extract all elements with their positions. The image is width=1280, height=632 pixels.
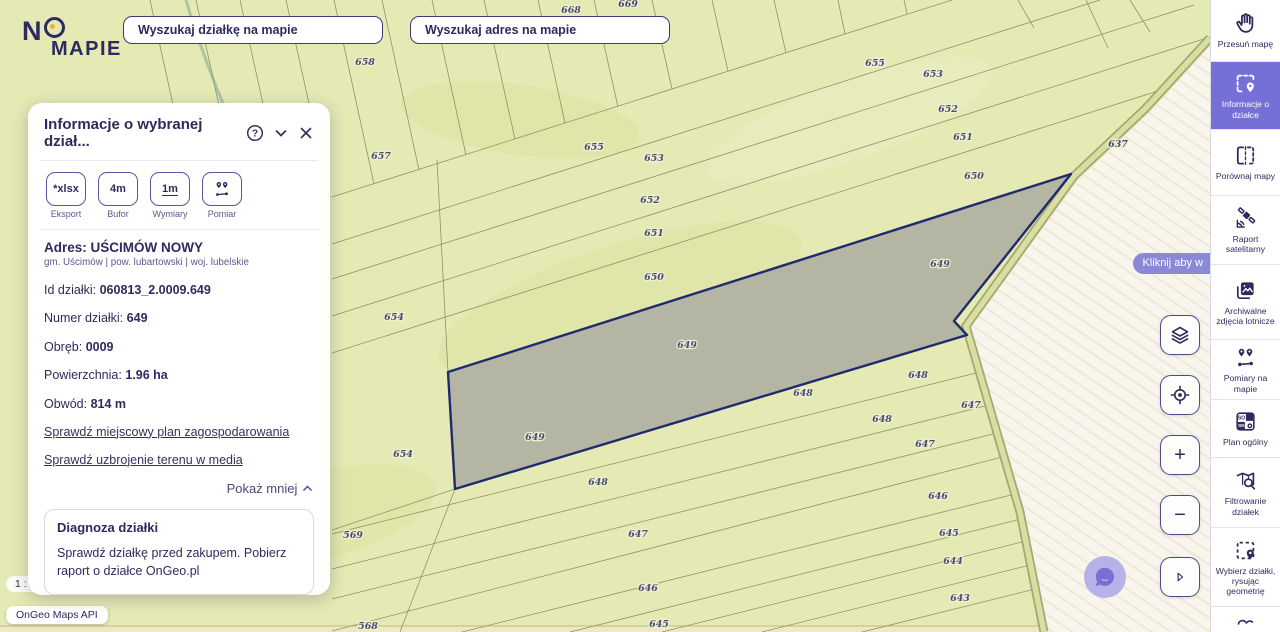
sidebar-item-parcel-info[interactable]: Informacje o działce: [1211, 62, 1280, 130]
parcel-label: 653: [923, 69, 943, 80]
parcel-label: 652: [938, 104, 958, 115]
parcel-address-sub: gm. Uścimów | pow. lubartowski | woj. lu…: [44, 257, 314, 268]
chevron-up-icon: [301, 482, 314, 495]
select-parcel-icon: [1233, 71, 1258, 96]
diagnosis-card[interactable]: Diagnoza działki Sprawdź działkę przed z…: [44, 509, 314, 595]
parcel-label: 654: [384, 312, 404, 323]
arrow-right-icon: [1171, 568, 1189, 586]
sidebar-item-filter-parcels[interactable]: Filtrowanie działek: [1211, 458, 1280, 528]
archival-photos-icon: [1233, 278, 1258, 303]
svg-text:SK: SK: [1238, 423, 1245, 429]
bottom-road: [0, 626, 1211, 632]
field-parcel-number: Numer działki: 649: [44, 311, 314, 325]
buffer-label: Bufor: [96, 209, 140, 219]
compare-maps-icon: [1233, 143, 1258, 168]
parcel-label: 651: [644, 228, 664, 239]
sidebar-item-compare-maps[interactable]: Porównaj mapy: [1211, 130, 1280, 196]
tool-sidebar: Przesuń mapę Informacje o działce Porówn: [1210, 0, 1280, 632]
field-parcel-id: Id działki: 060813_2.0009.649: [44, 283, 314, 297]
parcel-label: 648: [588, 477, 608, 488]
parcel-label: 649: [525, 432, 545, 443]
export-xlsx-button[interactable]: *xlsx: [46, 172, 86, 206]
parcel-label: 648: [908, 370, 928, 381]
sidebar-item-satellite-report[interactable]: Raport satelitarny: [1211, 196, 1280, 265]
partial-icon: [1233, 614, 1258, 626]
logo-pin-icon: [44, 17, 65, 38]
parcel-label: 644: [943, 556, 963, 567]
parcel-label: 646: [638, 583, 658, 594]
dimensions-label: Wymiary: [148, 209, 192, 219]
sidebar-item-pan-map[interactable]: Przesuń mapę: [1211, 0, 1280, 62]
parcel-label: 654: [393, 449, 413, 460]
parcel-label: 637: [1108, 139, 1128, 150]
filter-parcels-icon: [1233, 468, 1258, 493]
zoom-in-button[interactable]: +: [1160, 435, 1200, 475]
logo-letter: N: [22, 16, 43, 46]
parcel-label: 647: [628, 529, 648, 540]
show-less-button[interactable]: Pokaż mniej: [44, 481, 314, 496]
locate-button[interactable]: [1160, 375, 1200, 415]
diagnosis-title: Diagnoza działki: [57, 520, 301, 535]
export-label: Eksport: [44, 209, 88, 219]
map-tooltip: Kliknij aby w: [1133, 253, 1211, 274]
parcel-label: 647: [915, 439, 935, 450]
parcel-label: 657: [371, 151, 391, 162]
parcel-label: 645: [939, 528, 959, 539]
parcel-label: 647: [961, 400, 981, 411]
dimensions-button[interactable]: 1m: [150, 172, 190, 206]
general-plan-icon: SO SK: [1233, 409, 1258, 434]
parcel-label: 649: [930, 259, 950, 270]
close-panel-icon[interactable]: [298, 125, 314, 141]
field-district: Obręb: 0009: [44, 340, 314, 354]
logo-word: MAPIE: [51, 38, 122, 61]
parcel-label: 643: [950, 593, 970, 604]
parcel-address: Adres: UŚCIMÓW NOWY: [44, 240, 314, 255]
parcel-label: 651: [953, 132, 973, 143]
parcel-label: 655: [865, 58, 885, 69]
parcel-label: 650: [644, 272, 664, 283]
parcel-label: 648: [872, 414, 892, 425]
measure-label: Pomiar: [200, 209, 244, 219]
svg-text:SO: SO: [1238, 416, 1246, 422]
measure-pins-icon: [1233, 345, 1258, 370]
search-parcel-input[interactable]: [123, 16, 383, 44]
satellite-icon: [1233, 206, 1258, 231]
parcel-label: 649: [677, 340, 697, 351]
zoom-out-button[interactable]: −: [1160, 495, 1200, 535]
sidebar-item-draw-geometry[interactable]: Wybierz działki, rysując geometrię: [1211, 528, 1280, 607]
parcel-label: 646: [928, 491, 948, 502]
parcel-label: 652: [640, 195, 660, 206]
parcel-label: 650: [964, 171, 984, 182]
buffer-button[interactable]: 4m: [98, 172, 138, 206]
map-attribution: OnGeo Maps API: [6, 606, 108, 624]
collapse-panel-icon[interactable]: [273, 125, 289, 141]
diagnosis-text: Sprawdź działkę przed zakupem. Pobierz r…: [57, 544, 301, 580]
expand-panel-button[interactable]: [1160, 557, 1200, 597]
chat-icon: [1092, 564, 1118, 590]
parcel-label: 569: [343, 530, 363, 541]
panel-title: Informacje o wybranej dział...: [44, 116, 237, 150]
zoning-plan-link[interactable]: Sprawdź miejscowy plan zagospodarowania: [44, 425, 314, 439]
parcel-label: 645: [649, 619, 669, 630]
sidebar-item-archival-photos[interactable]: Archiwalne zdjęcia lotnicze: [1211, 265, 1280, 340]
sidebar-item-map-measurements[interactable]: Pomiary na mapie: [1211, 340, 1280, 400]
field-area: Powierzchnia: 1.96 ha: [44, 368, 314, 382]
draw-geometry-icon: [1233, 538, 1258, 563]
parcel-info-panel: Informacje o wybranej dział... ? *xlsx E…: [28, 103, 330, 595]
parcel-label: 655: [584, 142, 604, 153]
measure-button[interactable]: [202, 172, 242, 206]
search-address-input[interactable]: [410, 16, 670, 44]
sidebar-item-general-plan[interactable]: SO SK Plan ogólny: [1211, 400, 1280, 458]
measure-pins-icon: [212, 179, 232, 199]
parcel-label: 668: [561, 5, 581, 16]
hand-icon: [1233, 11, 1258, 36]
chat-button[interactable]: [1084, 556, 1126, 598]
svg-text:?: ?: [252, 129, 258, 140]
locate-icon: [1168, 383, 1192, 407]
parcel-label: 648: [793, 388, 813, 399]
utilities-link[interactable]: Sprawdź uzbrojenie terenu w media: [44, 453, 314, 467]
field-perimeter: Obwód: 814 m: [44, 397, 314, 411]
parcel-label: 669: [618, 0, 638, 10]
ongeo-map-app: 6686696586576556536526516506556536526516…: [0, 0, 1280, 632]
parcel-label: 568: [358, 621, 378, 632]
sidebar-item-partial[interactable]: [1211, 607, 1280, 632]
layers-button[interactable]: [1160, 315, 1200, 355]
namapie-logo[interactable]: N MAPIE: [22, 16, 122, 61]
layers-icon: [1168, 323, 1192, 347]
help-icon[interactable]: ?: [246, 124, 264, 142]
parcel-label: 658: [355, 57, 375, 68]
parcel-label: 653: [644, 153, 664, 164]
